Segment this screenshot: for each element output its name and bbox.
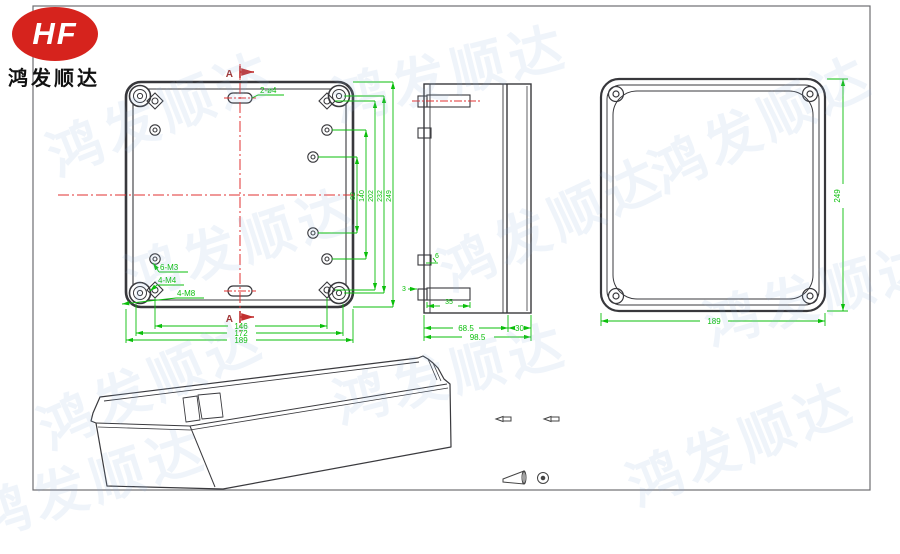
- dim-82: 82: [350, 192, 357, 200]
- cover-corner-screws: [609, 87, 818, 304]
- back-view: [601, 79, 825, 311]
- dim-249-front: 249: [386, 190, 393, 202]
- drawing-stage: 鸿发顺达 鸿发顺达 鸿发顺达 鸿发顺达 鸿发顺达 鸿发顺达 鸿发顺达 鸿发顺达 …: [0, 0, 900, 500]
- dim-189-back: 189: [707, 317, 721, 326]
- brand-logo: HF: [12, 7, 98, 61]
- dim-232: 232: [377, 190, 384, 202]
- hardware-screws: [496, 417, 559, 422]
- centerlines: [58, 64, 362, 332]
- dim-6: 6: [435, 253, 439, 260]
- brand-logo-text: HF: [32, 16, 77, 52]
- dim-3: 3: [402, 286, 406, 293]
- engineering-drawing-page: { "logo": { "brand": "HF", "company": "鸿…: [0, 0, 900, 500]
- dim-35: 35: [445, 299, 453, 306]
- hardware-washer: [538, 473, 549, 484]
- hardware-cone-plug: [503, 471, 526, 484]
- dim-249-back: 249: [833, 189, 842, 203]
- side-view: [418, 84, 531, 313]
- slot-count-label: 2-ø4: [260, 86, 277, 95]
- dim-189-front: 189: [234, 336, 248, 345]
- dim-202: 202: [368, 190, 375, 202]
- dim-68-5: 68.5: [458, 324, 474, 333]
- drawing-canvas: A A: [0, 0, 900, 500]
- dim-140: 140: [359, 190, 366, 202]
- label-4-m4: 4-M4: [158, 276, 177, 285]
- label-4-m8: 4-M8: [177, 289, 196, 298]
- label-6-m3: 6-M3: [160, 263, 179, 272]
- isometric-view: [91, 356, 451, 489]
- dim-30: 30: [515, 324, 524, 333]
- section-label-bottom: A: [226, 314, 233, 325]
- dim-98-5: 98.5: [470, 333, 486, 342]
- section-label-top: A: [226, 69, 233, 80]
- company-name: 鸿发顺达: [8, 62, 100, 91]
